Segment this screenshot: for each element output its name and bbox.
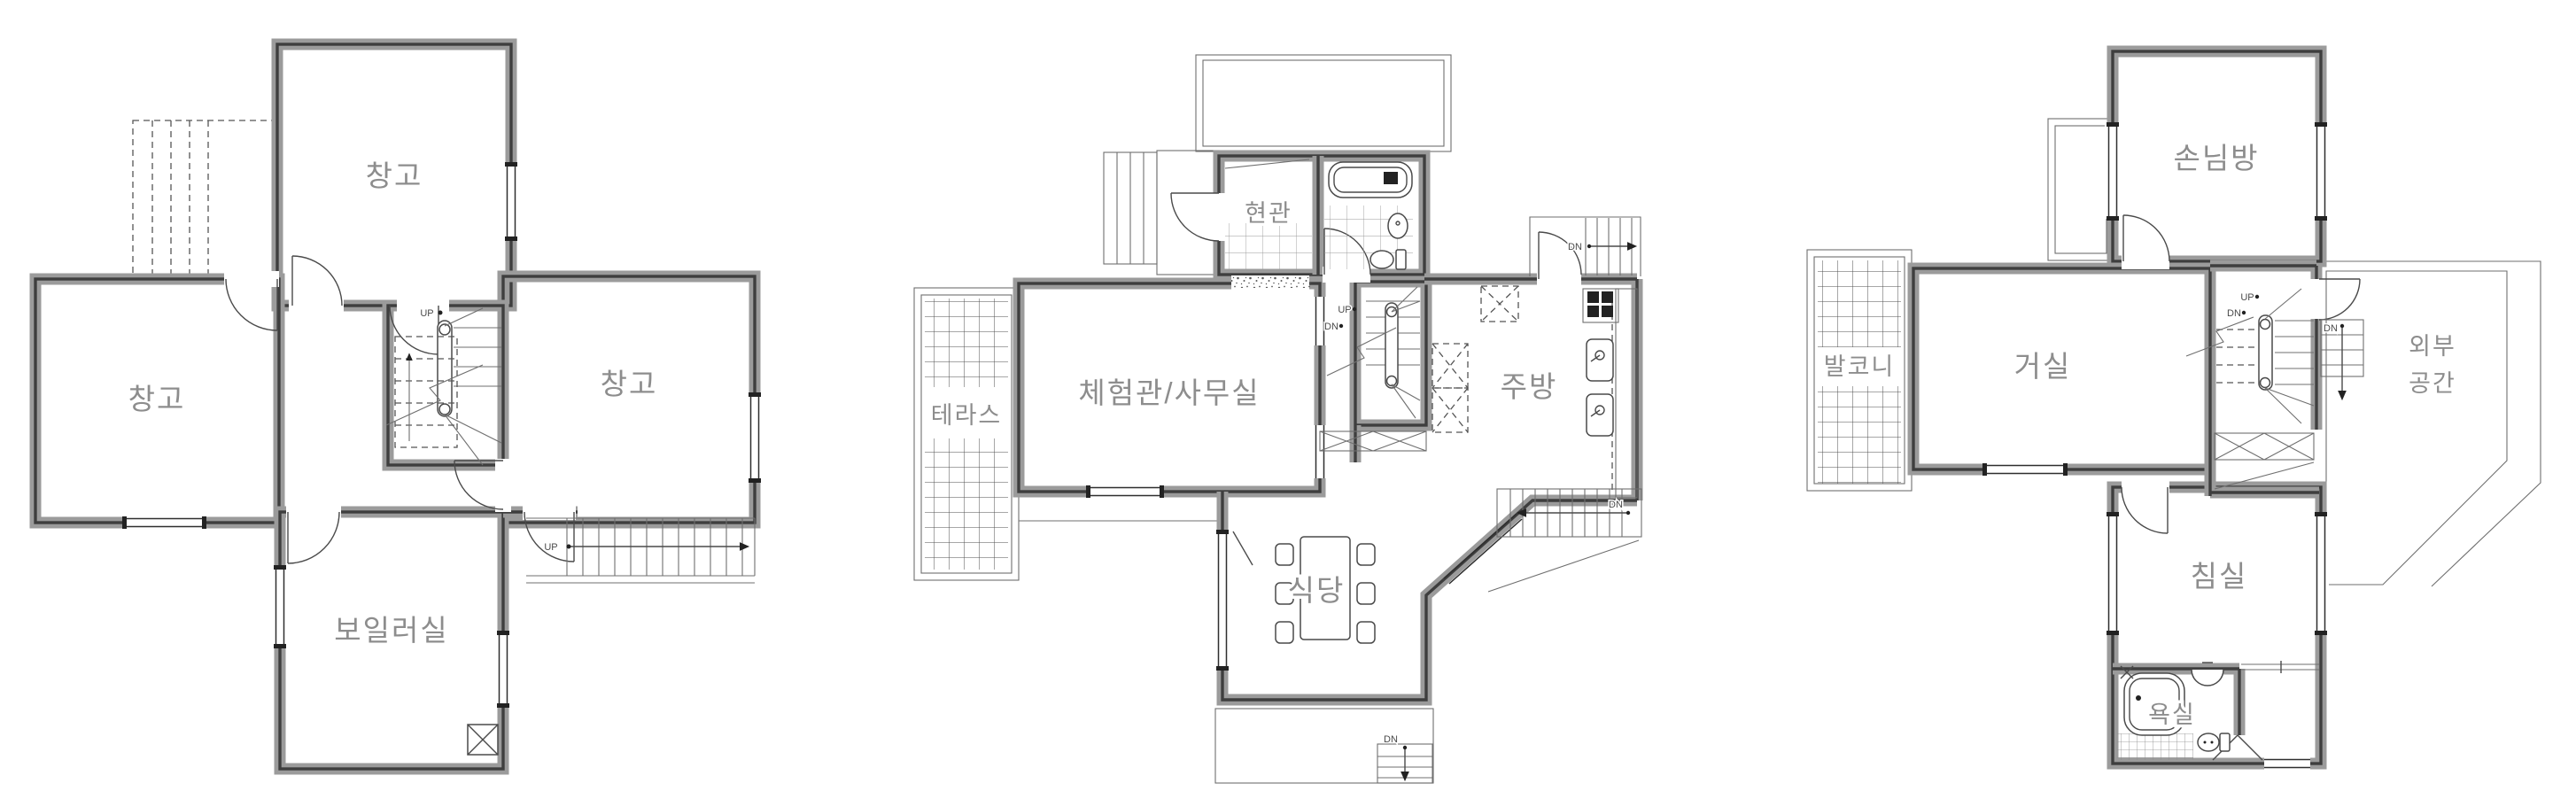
stair-dn-label: DN	[2227, 308, 2241, 319]
room-label-storage-top: 창고	[366, 159, 423, 192]
sink	[1388, 213, 1408, 238]
stair-dn-label: DN	[1324, 322, 1338, 332]
room-label-bathroom: 욕실	[2148, 702, 2196, 728]
ground-stair-top-right: DN	[1530, 217, 1641, 276]
chair	[1276, 622, 1293, 643]
room-label-storage-right: 창고	[601, 368, 658, 400]
room-label-balcony: 발코니	[1824, 353, 1896, 380]
room-label-guest-room: 손님방	[2173, 142, 2259, 174]
basement-exterior-stair-dashed	[133, 120, 275, 278]
stair-dn-label: DN	[1568, 242, 1582, 252]
stair-dn-label: DN	[1609, 500, 1623, 510]
room-label-entrance: 현관	[1245, 200, 1292, 227]
room-label-kitchen: 주방	[1501, 370, 1558, 403]
chair	[1357, 583, 1375, 604]
room-label-terrace: 테라스	[931, 402, 1003, 429]
chair	[1357, 544, 1375, 565]
stair-up-label: UP	[1338, 305, 1351, 315]
room-label-dining: 식당	[1288, 574, 1346, 607]
chair	[1357, 622, 1375, 643]
roof-deck	[1196, 55, 1451, 151]
bathroom-ground	[1324, 162, 1413, 269]
entry-porch	[1104, 151, 1219, 275]
floor-plans-drawing: UP UP 창고 창고 창고	[0, 0, 2576, 791]
ground-deck-bottom: DN	[1215, 709, 1433, 783]
shaft-box	[468, 725, 498, 755]
plan-upper-floor: UP DN DN 손님방	[1807, 51, 2541, 772]
stair-dn-label: DN	[1384, 734, 1398, 745]
terrace	[914, 288, 1227, 580]
stair-up-label: UP	[2240, 292, 2254, 303]
room-label-outdoor-space-line1: 외부	[2409, 333, 2456, 360]
stair-up-label: UP	[420, 308, 433, 319]
floor-plan-sheet: UP UP 창고 창고 창고	[0, 0, 2576, 791]
room-label-storage-left: 창고	[128, 383, 186, 415]
room-label-bedroom: 침실	[2191, 560, 2248, 593]
room-label-boiler-room: 보일러실	[334, 614, 448, 647]
toilet	[2198, 733, 2219, 751]
toilet	[1370, 251, 1393, 268]
plan-ground-floor: UP DN	[914, 55, 1641, 783]
room-label-living-room: 거실	[2014, 350, 2072, 383]
chair	[1276, 544, 1293, 565]
sink	[2192, 670, 2223, 686]
outdoor-deck	[2326, 261, 2541, 586]
plan-basement: UP UP 창고 창고 창고	[35, 44, 763, 769]
basement-stair-core: UP	[386, 308, 501, 465]
room-label-hall-office: 체험관/사무실	[1078, 376, 1260, 409]
stair-dn-label: DN	[2324, 323, 2338, 334]
deck-steps: DN	[2321, 320, 2363, 399]
room-label-outdoor-space-line2: 공간	[2409, 370, 2456, 397]
stair-up-label: UP	[544, 542, 557, 553]
small-balcony	[2048, 119, 2114, 260]
